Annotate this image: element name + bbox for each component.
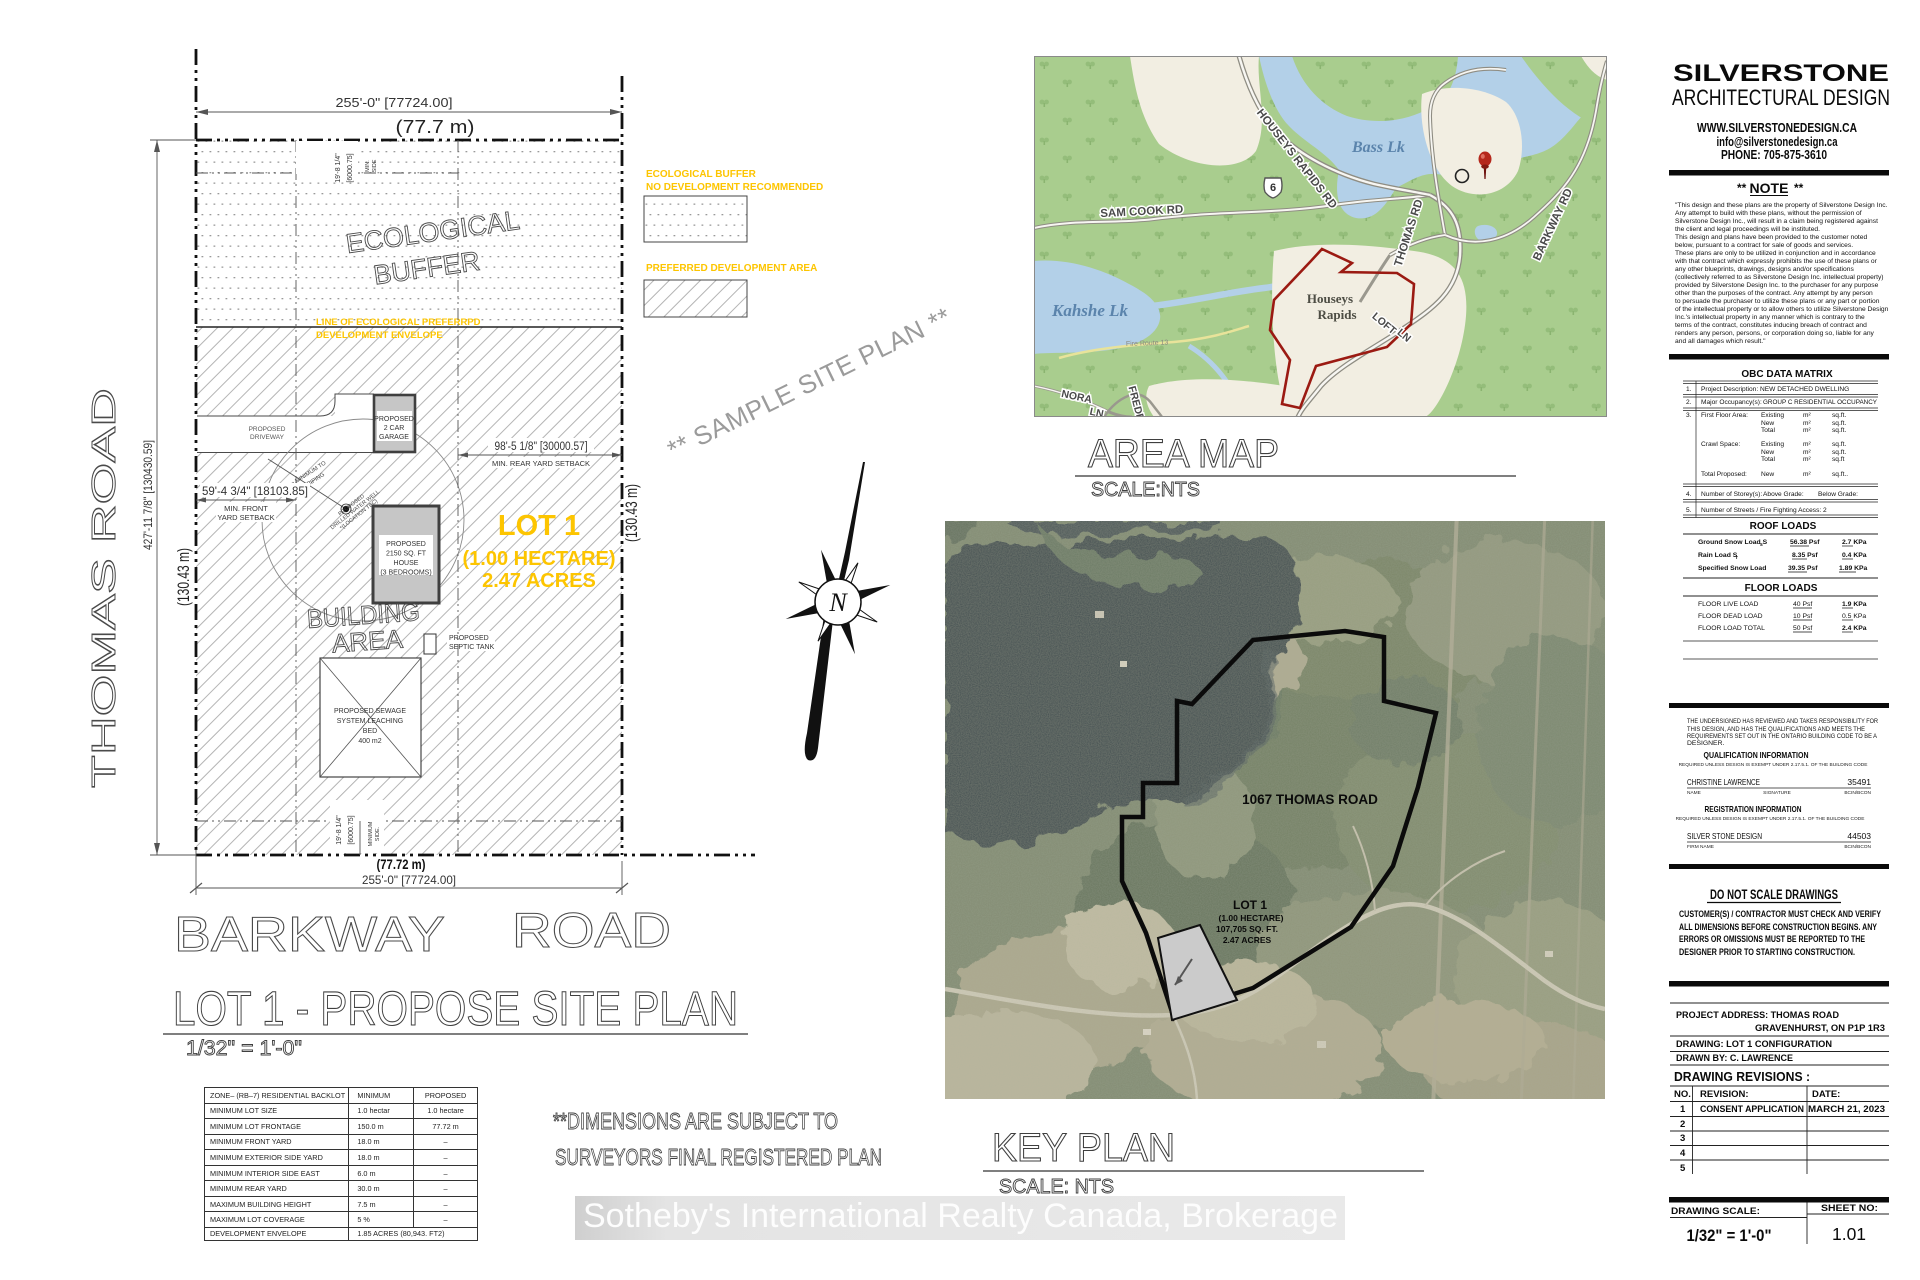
svg-text:FLOOR LIVE LOAD: FLOOR LIVE LOAD bbox=[1698, 601, 1759, 608]
svg-text:New: New bbox=[1761, 420, 1774, 427]
svg-text:4: 4 bbox=[1680, 1148, 1686, 1159]
svg-text:SILVER STONE DESIGN: SILVER STONE DESIGN bbox=[1687, 831, 1762, 841]
svg-text:m²: m² bbox=[1803, 449, 1811, 456]
svg-text:PHONE: 705-875-3610: PHONE: 705-875-3610 bbox=[1721, 148, 1827, 162]
svg-text:Above Grade:: Above Grade: bbox=[1763, 491, 1804, 498]
svg-text:Specified Snow Load: Specified Snow Load bbox=[1698, 565, 1766, 572]
svg-text:m²: m² bbox=[1803, 427, 1811, 434]
svg-text:DRAWING REVISIONS :: DRAWING REVISIONS : bbox=[1674, 1070, 1810, 1084]
svg-text:QUALIFICATION INFORMATION: QUALIFICATION INFORMATION bbox=[1704, 750, 1809, 760]
svg-text:Number of Streets / Fire Fight: Number of Streets / Fire Fighting Access… bbox=[1701, 507, 1827, 514]
svg-text:New: New bbox=[1761, 449, 1774, 456]
svg-text:SHEET NO:: SHEET NO: bbox=[1821, 1203, 1878, 1214]
svg-text:CUSTOMER(S) / CONTRACTOR MUST: CUSTOMER(S) / CONTRACTOR MUST CHECK AND … bbox=[1679, 909, 1882, 919]
svg-text:**: ** bbox=[1794, 181, 1804, 195]
svg-text:(collectively referred to as: (collectively referred to as Silverstone… bbox=[1675, 274, 1884, 281]
svg-text:sq.ft..: sq.ft.. bbox=[1832, 471, 1848, 478]
svg-text:REQUIRED UNLESS DESIGN IS EXEM: REQUIRED UNLESS DESIGN IS EXEMPT UNDER 2… bbox=[1676, 816, 1865, 822]
svg-text:DO NOT SCALE DRAWINGS: DO NOT SCALE DRAWINGS bbox=[1710, 887, 1838, 902]
svg-text:0.5 KPa: 0.5 KPa bbox=[1842, 613, 1866, 620]
svg-text:DRAWN BY: C. LAWRENCE: DRAWN BY: C. LAWRENCE bbox=[1676, 1053, 1793, 1064]
svg-text:NOTE: NOTE bbox=[1750, 180, 1789, 196]
svg-text:REGISTRATION INFORMATION: REGISTRATION INFORMATION bbox=[1705, 804, 1802, 814]
svg-text:New: New bbox=[1761, 471, 1774, 478]
svg-text:DESIGNER.: DESIGNER. bbox=[1687, 740, 1725, 747]
svg-text:REQUIREMENTS SET OUT IN THE ON: REQUIREMENTS SET OUT IN THE ONTARIO BUIL… bbox=[1687, 733, 1877, 740]
svg-text:5: 5 bbox=[1680, 1163, 1686, 1174]
svg-text:PROJECT ADDRESS: THOMAS ROAD: PROJECT ADDRESS: THOMAS ROAD bbox=[1676, 1010, 1839, 1021]
svg-text:and all damages which result.: and all damages which result." bbox=[1675, 338, 1766, 345]
svg-text:Existing: Existing bbox=[1761, 441, 1784, 448]
svg-text:GRAVENHURST, ON P1P 1R3: GRAVENHURST, ON P1P 1R3 bbox=[1755, 1023, 1885, 1034]
svg-text:m²: m² bbox=[1803, 471, 1811, 478]
svg-text:FLOOR LOAD TOTAL: FLOOR LOAD TOTAL bbox=[1698, 625, 1765, 632]
svg-text:sq.ft.: sq.ft. bbox=[1832, 420, 1846, 427]
svg-text:44503: 44503 bbox=[1847, 831, 1871, 841]
svg-text:Major Occupancy(s):: Major Occupancy(s): bbox=[1701, 399, 1762, 406]
svg-text:SIGNATURE: SIGNATURE bbox=[1763, 790, 1791, 796]
svg-text:m²: m² bbox=[1803, 412, 1811, 419]
svg-text:WWW.SILVERSTONEDESIGN.CA: WWW.SILVERSTONEDESIGN.CA bbox=[1697, 120, 1857, 135]
svg-text:4.: 4. bbox=[1686, 491, 1692, 498]
svg-text:s: s bbox=[1760, 542, 1763, 548]
svg-text:THIS DESIGN, AND HAS THE QUALI: THIS DESIGN, AND HAS THE QUALIFICATIONS … bbox=[1687, 726, 1865, 733]
svg-text:ERRORS OR OMISSIONS MUST BE RE: ERRORS OR OMISSIONS MUST BE REPORTED TO … bbox=[1679, 934, 1865, 944]
svg-text:BCIN/BCON: BCIN/BCON bbox=[1844, 790, 1871, 796]
svg-text:Existing: Existing bbox=[1761, 412, 1784, 419]
svg-text:First Floor Area:: First Floor Area: bbox=[1701, 412, 1748, 419]
svg-text:sq.ft.: sq.ft. bbox=[1832, 412, 1846, 419]
svg-text:below, pursuant to a contract: below, pursuant to a contract for sale o… bbox=[1675, 242, 1853, 249]
svg-text:provided by Silverstone Design: provided by Silverstone Design Inc. to t… bbox=[1675, 282, 1879, 289]
svg-text:sq.ft.: sq.ft. bbox=[1832, 441, 1846, 448]
svg-text:Rain Load S: Rain Load S bbox=[1698, 552, 1738, 559]
svg-text:56.38 Psf: 56.38 Psf bbox=[1790, 539, 1820, 546]
svg-text:DRAWING SCALE:: DRAWING SCALE: bbox=[1671, 1206, 1760, 1217]
svg-text:This design and plans have bee: This design and plans have been provided… bbox=[1675, 234, 1867, 241]
svg-text:m²: m² bbox=[1803, 441, 1811, 448]
svg-text:DRAWING: LOT 1 CONFIGURATION: DRAWING: LOT 1 CONFIGURATION bbox=[1676, 1039, 1832, 1050]
svg-text:5.: 5. bbox=[1686, 507, 1692, 514]
svg-text:3: 3 bbox=[1680, 1133, 1685, 1144]
svg-text:sq.ft: sq.ft bbox=[1832, 456, 1845, 463]
svg-text:CONSENT APPLICATION: CONSENT APPLICATION bbox=[1700, 1104, 1804, 1115]
svg-text:10 Psf: 10 Psf bbox=[1793, 613, 1812, 620]
svg-text:Total: Total bbox=[1761, 427, 1775, 434]
svg-text:Inc.'s intellectual property i: Inc.'s intellectual property in any mann… bbox=[1675, 314, 1865, 321]
svg-text:1.: 1. bbox=[1686, 386, 1692, 393]
svg-text:OBC DATA MATRIX: OBC DATA MATRIX bbox=[1741, 369, 1833, 380]
svg-text:info@silverstonedesign.ca: info@silverstonedesign.ca bbox=[1717, 135, 1839, 149]
svg-text:renders any person, persons,: renders any person, persons, or corporat… bbox=[1675, 330, 1875, 337]
svg-text:r: r bbox=[1736, 555, 1738, 561]
svg-text:terms of the contract, constit: terms of the contract, constitutes induc… bbox=[1675, 322, 1867, 329]
svg-text:1.9 KPa: 1.9 KPa bbox=[1842, 601, 1867, 608]
svg-text:NAME: NAME bbox=[1687, 790, 1701, 796]
svg-text:REVISION:: REVISION: bbox=[1700, 1089, 1749, 1100]
svg-text:ALL DIMENSIONS BEFORE CONSTRU: ALL DIMENSIONS BEFORE CONSTRUCTION BEGIN… bbox=[1679, 922, 1878, 932]
svg-text:Total Proposed:: Total Proposed: bbox=[1701, 471, 1747, 478]
svg-text:NO.: NO. bbox=[1674, 1089, 1691, 1100]
svg-text:MARCH 21, 2023: MARCH 21, 2023 bbox=[1808, 1104, 1885, 1115]
svg-text:39.35 Psf: 39.35 Psf bbox=[1788, 565, 1818, 572]
svg-text:sq.ft.: sq.ft. bbox=[1832, 427, 1846, 434]
svg-text:sq.ft.: sq.ft. bbox=[1832, 449, 1846, 456]
svg-text:3.: 3. bbox=[1686, 412, 1692, 419]
svg-text:to persuade the purchaser to u: to persuade the purchaser to utilize the… bbox=[1675, 298, 1880, 305]
svg-text:BCIN/BCON: BCIN/BCON bbox=[1844, 844, 1871, 850]
svg-text:the client and legal proceedi: the client and legal proceedings will be… bbox=[1675, 226, 1820, 233]
svg-text:8.35 Psf: 8.35 Psf bbox=[1792, 552, 1818, 559]
svg-text:m²: m² bbox=[1803, 420, 1811, 427]
svg-text:with that contract which expr: with that contract which expressly prohi… bbox=[1674, 258, 1878, 265]
svg-text:SILVERSTONE: SILVERSTONE bbox=[1673, 60, 1889, 87]
svg-text:2.7 KPa: 2.7 KPa bbox=[1842, 539, 1867, 546]
svg-text:40 Psf: 40 Psf bbox=[1793, 601, 1812, 608]
svg-text:Ground Snow Load S: Ground Snow Load S bbox=[1698, 539, 1768, 546]
svg-text:2: 2 bbox=[1680, 1119, 1685, 1130]
svg-text:Silverstone Design Inc., will: Silverstone Design Inc., will result in … bbox=[1675, 218, 1878, 225]
svg-text:"This design and these plans a: "This design and these plans are the pro… bbox=[1675, 202, 1888, 209]
svg-text:of the intellectual property o: of the intellectual property or to allow… bbox=[1675, 306, 1889, 313]
svg-text:DATE:: DATE: bbox=[1812, 1089, 1840, 1100]
svg-text:2.4 KPa: 2.4 KPa bbox=[1842, 625, 1867, 632]
svg-text:Below Grade:: Below Grade: bbox=[1818, 491, 1858, 498]
svg-text:ROOF LOADS: ROOF LOADS bbox=[1750, 521, 1817, 532]
svg-text:ARCHITECTURAL DESIGN: ARCHITECTURAL DESIGN bbox=[1672, 85, 1890, 110]
svg-text:FIRM NAME: FIRM NAME bbox=[1687, 844, 1714, 850]
svg-text:These plans are only to be uti: These plans are only to be utilized in c… bbox=[1675, 250, 1876, 257]
svg-text:Any attempt to build with thes: Any attempt to build with these plans, w… bbox=[1675, 210, 1862, 217]
svg-text:GROUP C RESIDENTIAL OCCUPANCY: GROUP C RESIDENTIAL OCCUPANCY bbox=[1763, 399, 1878, 406]
svg-text:1: 1 bbox=[1680, 1104, 1686, 1115]
svg-text:Project Description:: Project Description: bbox=[1701, 386, 1758, 393]
svg-text:0.4 KPa: 0.4 KPa bbox=[1842, 552, 1867, 559]
svg-text:DESIGNER PRIOR TO STARTING CON: DESIGNER PRIOR TO STARTING CONSTRUCTION. bbox=[1679, 947, 1855, 957]
svg-text:**: ** bbox=[1737, 181, 1747, 195]
svg-text:2.: 2. bbox=[1686, 399, 1692, 406]
svg-text:any other blueprints, drawing: any other blueprints, drawings, designs … bbox=[1675, 266, 1854, 273]
svg-text:1/32" = 1'-0": 1/32" = 1'-0" bbox=[1687, 1227, 1772, 1245]
svg-text:1.89 KPa: 1.89 KPa bbox=[1839, 565, 1868, 572]
svg-text:Total: Total bbox=[1761, 456, 1775, 463]
svg-text:1.01: 1.01 bbox=[1832, 1224, 1866, 1244]
svg-text:Number of Storey(s):: Number of Storey(s): bbox=[1701, 491, 1762, 498]
svg-text:CHRISTINE LAWRENCE: CHRISTINE LAWRENCE bbox=[1687, 777, 1760, 787]
svg-text:FLOOR LOADS: FLOOR LOADS bbox=[1745, 583, 1818, 594]
svg-text:REQUIRED UNLESS DESIGN IS EXEM: REQUIRED UNLESS DESIGN IS EXEMPT UNDER 2… bbox=[1679, 762, 1868, 768]
svg-text:FLOOR DEAD LOAD: FLOOR DEAD LOAD bbox=[1698, 613, 1763, 620]
svg-text:other than the purposes of the: other than the purposes of the contract.… bbox=[1675, 290, 1873, 297]
svg-text:Crawl Space:: Crawl Space: bbox=[1701, 441, 1740, 448]
svg-text:THE UNDERSIGNED HAS REVIEWED A: THE UNDERSIGNED HAS REVIEWED AND TAKES R… bbox=[1687, 718, 1878, 725]
svg-text:NEW DETACHED DWELLING: NEW DETACHED DWELLING bbox=[1760, 386, 1849, 393]
svg-text:m²: m² bbox=[1803, 456, 1811, 463]
svg-text:35491: 35491 bbox=[1847, 777, 1871, 787]
svg-text:50 Psf: 50 Psf bbox=[1793, 625, 1812, 632]
